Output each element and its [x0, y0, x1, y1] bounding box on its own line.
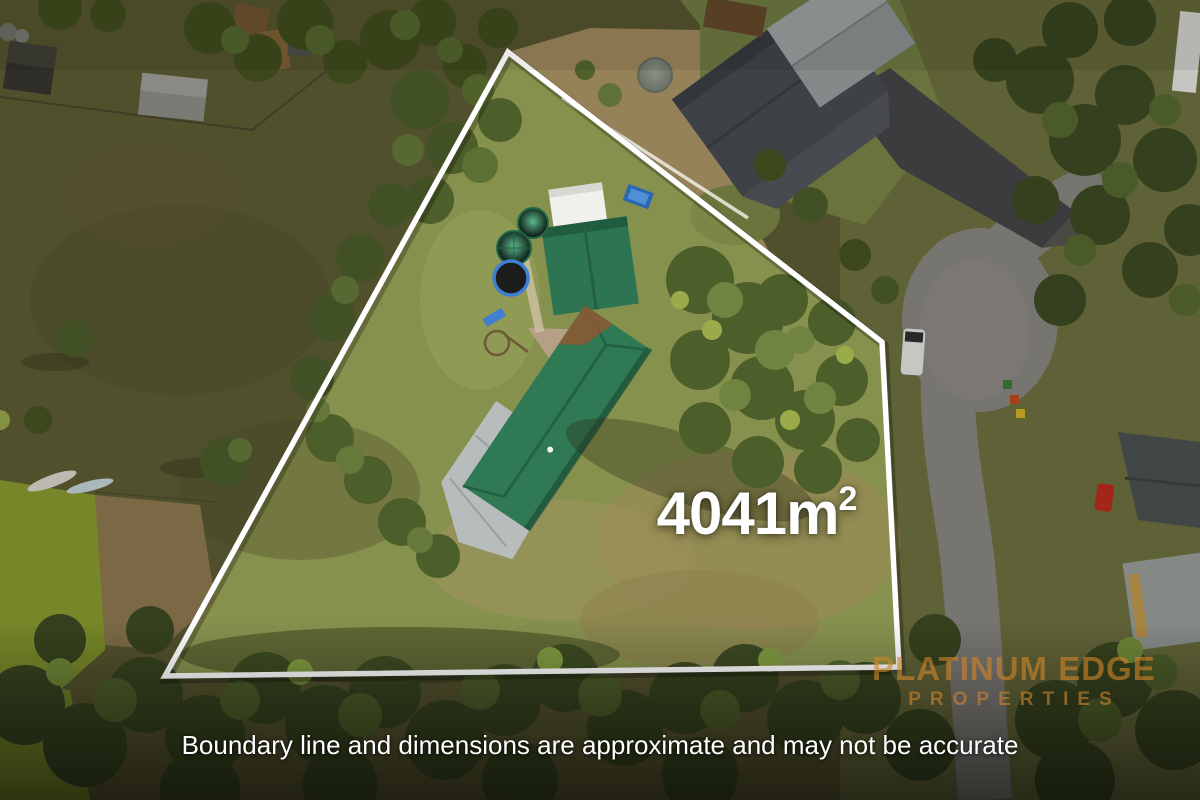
watermark-line1: PLATINUM EDGE — [872, 652, 1148, 685]
watermark: PLATINUM EDGE PROPERTIES — [872, 652, 1148, 709]
watermark-line2: PROPERTIES — [872, 690, 1148, 709]
top-vignette — [0, 0, 1200, 70]
trampoline — [494, 261, 528, 295]
aerial-photo: 4041m2 PLATINUM EDGE PROPERTIES Boundary… — [0, 0, 1200, 800]
green-shed-roof — [541, 216, 638, 315]
area-superscript: 2 — [838, 480, 857, 518]
area-unit: m — [786, 480, 838, 547]
disclaimer-caption: Boundary line and dimensions are approxi… — [0, 730, 1200, 761]
area-label: 4041m2 — [612, 484, 902, 553]
bottom-vignette — [0, 620, 1200, 800]
area-value: 4041 — [657, 480, 786, 547]
